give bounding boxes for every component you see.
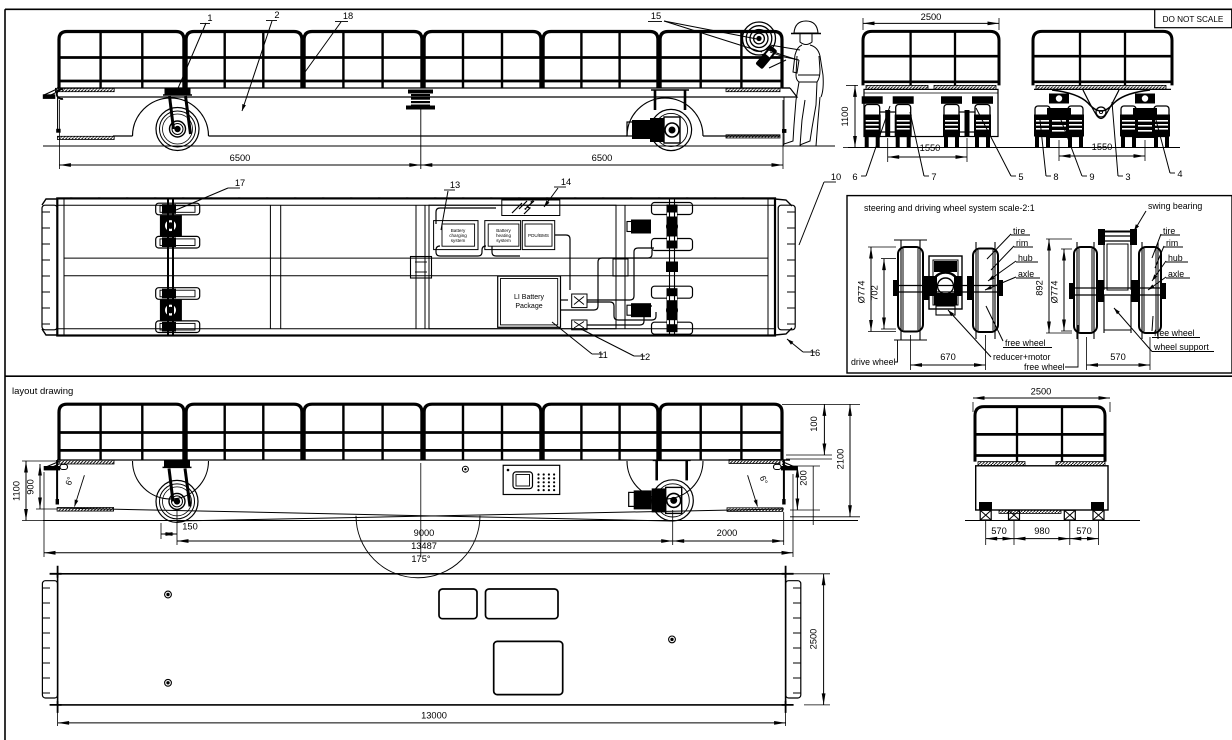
svg-text:PDU/BMS: PDU/BMS xyxy=(528,233,549,238)
svg-text:1550: 1550 xyxy=(1092,142,1113,152)
svg-text:axle: axle xyxy=(1168,269,1184,279)
svg-text:1100: 1100 xyxy=(840,107,850,127)
svg-text:900: 900 xyxy=(26,479,36,495)
svg-text:rim: rim xyxy=(1166,238,1178,248)
svg-text:layout drawing: layout drawing xyxy=(12,386,73,397)
svg-text:hub: hub xyxy=(1018,253,1033,263)
svg-text:5: 5 xyxy=(1018,172,1023,182)
svg-text:1: 1 xyxy=(207,13,212,23)
svg-text:3: 3 xyxy=(1125,172,1130,182)
svg-text:6500: 6500 xyxy=(230,153,251,163)
svg-text:6: 6 xyxy=(852,172,857,182)
svg-text:2100: 2100 xyxy=(836,449,846,470)
svg-text:2000: 2000 xyxy=(717,528,738,538)
svg-text:system: system xyxy=(451,238,466,243)
svg-text:2500: 2500 xyxy=(921,12,942,22)
svg-text:570: 570 xyxy=(991,526,1007,536)
svg-text:tire: tire xyxy=(1013,226,1025,236)
svg-text:200: 200 xyxy=(799,470,809,486)
svg-text:11: 11 xyxy=(598,350,608,360)
svg-text:LI Battery: LI Battery xyxy=(514,294,544,301)
svg-text:wheel support: wheel support xyxy=(1153,342,1209,352)
svg-text:7: 7 xyxy=(931,172,936,182)
svg-text:free wheel: free wheel xyxy=(1005,338,1046,348)
svg-text:tire: tire xyxy=(1163,226,1175,236)
svg-text:570: 570 xyxy=(1110,352,1126,362)
svg-text:100: 100 xyxy=(809,416,819,432)
svg-text:6500: 6500 xyxy=(592,153,613,163)
svg-text:702: 702 xyxy=(870,285,880,301)
svg-text:570: 570 xyxy=(1076,526,1092,536)
svg-text:9000: 9000 xyxy=(414,528,435,538)
svg-text:8: 8 xyxy=(1053,172,1058,182)
svg-text:1100: 1100 xyxy=(12,481,22,501)
svg-text:9: 9 xyxy=(1089,172,1094,182)
svg-text:steering and driving wheel sys: steering and driving wheel system scale-… xyxy=(864,203,1035,213)
svg-text:670: 670 xyxy=(940,352,956,362)
svg-text:175°: 175° xyxy=(411,554,431,564)
svg-text:system: system xyxy=(496,238,511,243)
svg-text:150: 150 xyxy=(182,522,198,532)
svg-text:2500: 2500 xyxy=(1031,387,1052,397)
svg-text:4: 4 xyxy=(1177,169,1182,179)
svg-text:17: 17 xyxy=(235,178,245,188)
svg-text:Ø774: Ø774 xyxy=(1050,281,1060,304)
svg-text:13: 13 xyxy=(450,180,460,190)
svg-text:free wheel: free wheel xyxy=(1154,328,1195,338)
svg-text:axle: axle xyxy=(1018,269,1034,279)
svg-text:14: 14 xyxy=(561,177,571,187)
svg-text:DO NOT SCALE: DO NOT SCALE xyxy=(1163,15,1224,24)
svg-text:rim: rim xyxy=(1016,238,1028,248)
svg-text:18: 18 xyxy=(343,11,353,21)
svg-text:10: 10 xyxy=(831,172,841,182)
svg-text:15: 15 xyxy=(651,11,661,21)
svg-text:980: 980 xyxy=(1034,526,1050,536)
svg-text:13487: 13487 xyxy=(411,541,437,551)
svg-text:13000: 13000 xyxy=(421,711,447,721)
svg-text:free wheel: free wheel xyxy=(1024,362,1065,372)
svg-text:Ø774: Ø774 xyxy=(857,281,867,304)
svg-text:892: 892 xyxy=(1035,280,1045,296)
svg-text:drive wheel: drive wheel xyxy=(851,357,896,367)
svg-text:2: 2 xyxy=(274,10,279,20)
svg-text:reducer+motor: reducer+motor xyxy=(993,352,1051,362)
svg-text:16: 16 xyxy=(810,348,820,358)
svg-text:2500: 2500 xyxy=(809,629,819,650)
svg-text:swing bearing: swing bearing xyxy=(1148,201,1202,211)
svg-text:12: 12 xyxy=(640,352,650,362)
svg-text:hub: hub xyxy=(1168,253,1183,263)
svg-text:Package: Package xyxy=(515,303,542,310)
